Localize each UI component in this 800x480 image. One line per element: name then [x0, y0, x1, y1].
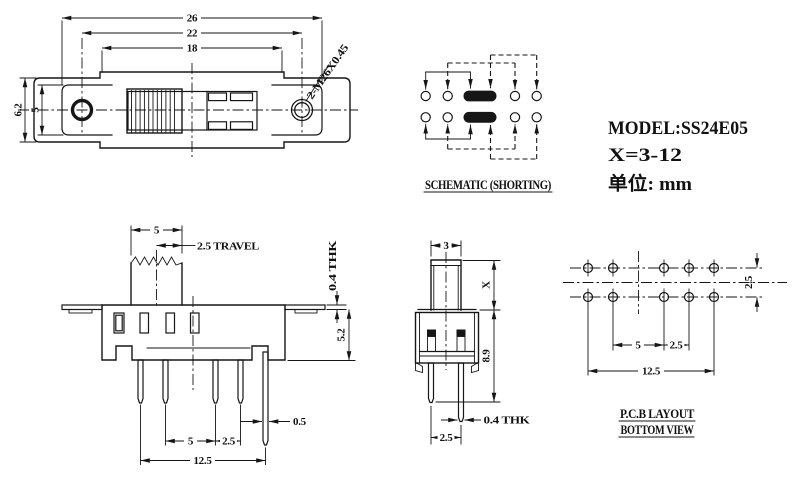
side-terminal-right-cap — [457, 330, 466, 337]
front-slots — [114, 313, 199, 333]
title-block: MODEL:SS24E05 X=3-12 单位: mm — [608, 119, 748, 195]
datasheet-drawing: 26 22 18 6.2 5 2-M26X0.45 — [0, 0, 800, 480]
top-dim-5-label: 5 — [30, 107, 42, 113]
side-view: 3 X 8.9 0.4 THK 2.5 — [416, 240, 531, 444]
shorting-contact-bottom — [464, 112, 497, 123]
knob-hatch — [132, 91, 175, 133]
shorting-contact-top — [464, 91, 497, 102]
side-hook-left — [416, 363, 423, 373]
side-hook-right — [472, 363, 479, 373]
pcb-dim-span-label: 12.5 — [642, 366, 661, 378]
pcb-layout-view: 2.5 5 2.5 12.5 P.C.B LAYOUT BOTTOM VIEW — [563, 251, 787, 437]
top-dim-18-label: 18 — [187, 43, 198, 55]
slider-knob-top — [127, 89, 182, 133]
front-flange-left — [62, 305, 102, 310]
schematic-view: SCHEMATIC (SHORTING) — [421, 55, 552, 192]
side-terminal-left — [428, 337, 436, 352]
pcb-caption-line1: P.C.B LAYOUT — [620, 407, 695, 421]
schematic-links-top — [426, 55, 537, 89]
side-terminal-right — [457, 337, 465, 352]
schematic-links-bottom — [426, 124, 537, 159]
side-pins — [429, 363, 464, 422]
side-body — [416, 310, 479, 373]
front-dim-knob-label: 5 — [154, 225, 160, 237]
x-range: X=3-12 — [608, 146, 682, 166]
pcb-dim-5-label: 5 — [635, 340, 641, 352]
front-dim-pitch5-label: 5 — [188, 436, 194, 448]
side-terminal-left-cap — [427, 330, 436, 337]
side-dim-thk-label: 0.4 THK — [484, 415, 531, 427]
schematic-caption: SCHEMATIC (SHORTING) — [425, 178, 551, 192]
side-dim-x-label: X — [481, 281, 493, 289]
drawing-canvas: 26 22 18 6.2 5 2-M26X0.45 — [0, 0, 800, 480]
front-dim-52-label: 5.2 — [336, 328, 348, 342]
front-dim-pitch25-label: 2.5 — [222, 436, 236, 448]
front-pins — [138, 352, 268, 445]
side-dim-25-label: 2.5 — [440, 432, 454, 444]
side-dimensions: 3 X 8.9 0.4 THK 2.5 — [431, 240, 530, 444]
pcb-dim-row-label: 2.5 — [743, 275, 755, 289]
front-dim-span-label: 12.5 — [193, 455, 212, 467]
contact-windows — [209, 93, 253, 129]
pcb-caption-line2: BOTTOM VIEW — [621, 423, 695, 437]
front-dim-thk-label: 0.4 THK — [327, 240, 339, 291]
top-dim-26-label: 26 — [187, 13, 198, 25]
slider-slot — [128, 92, 257, 131]
front-view: 5 2.5 TRAVEL 0.4 THK 5.2 0.5 5 2.5 — [62, 225, 355, 468]
side-dim-3-label: 3 — [443, 240, 449, 252]
pcb-dim-25-label: 2.5 — [670, 340, 684, 352]
top-view: 26 22 18 6.2 5 2-M26X0.45 — [13, 13, 359, 158]
side-dim-89-label: 8.9 — [481, 349, 493, 363]
model-number: MODEL:SS24E05 — [608, 119, 748, 139]
top-dim-22-label: 22 — [187, 28, 198, 40]
top-dim-6-2-label: 6.2 — [13, 103, 25, 117]
front-dim-05-label: 0.5 — [293, 416, 307, 428]
unit-note: 单位: mm — [608, 173, 693, 195]
front-dim-travel-label: 2.5 TRAVEL — [197, 241, 259, 253]
front-knob — [131, 250, 182, 308]
thread-callout-label: 2-M26X0.45 — [305, 42, 352, 102]
front-flange-right — [285, 305, 325, 310]
